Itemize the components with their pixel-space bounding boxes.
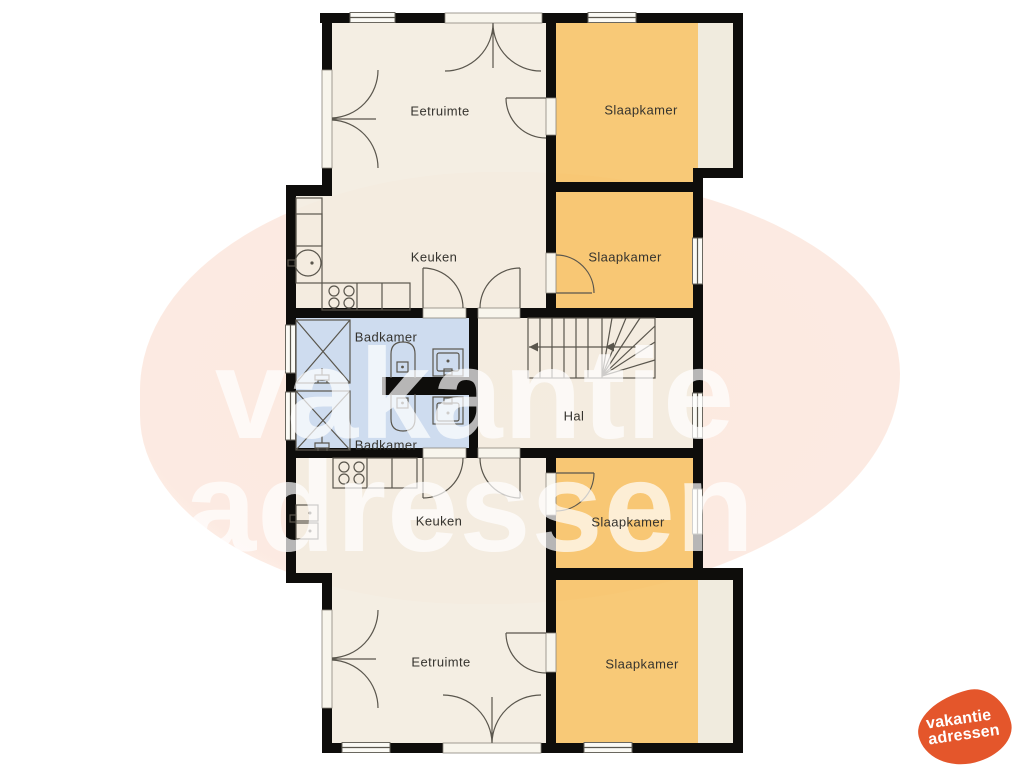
brand-logo: vakantie adressen <box>905 686 1020 766</box>
floorplan-page: vakantie adressen Eetruimte Slaapkamer K… <box>0 0 1024 768</box>
floor-strip-top-right <box>698 18 733 173</box>
room-label-badkamer-lower: Badkamer <box>355 438 417 453</box>
room-label-slaapkamer-bottom-right: Slaapkamer <box>605 657 678 672</box>
window <box>584 743 632 753</box>
room-label-eetruimte-top: Eetruimte <box>410 104 469 119</box>
window <box>342 743 390 753</box>
window <box>693 238 703 284</box>
room-label-badkamer-upper: Badkamer <box>355 330 417 345</box>
room-label-slaapkamer-top-right: Slaapkamer <box>604 103 677 118</box>
room-label-slaapkamer-lower-right: Slaapkamer <box>591 515 664 530</box>
window <box>350 13 395 23</box>
window <box>588 13 636 23</box>
room-label-keuken-top: Keuken <box>411 250 458 265</box>
room-label-eetruimte-bottom: Eetruimte <box>411 655 470 670</box>
room-label-hal: Hal <box>564 409 585 424</box>
watermark-line2: adressen <box>185 444 755 572</box>
floor-strip-bottom-right <box>698 578 733 748</box>
room-label-keuken-bottom: Keuken <box>416 514 463 529</box>
room-label-slaapkamer-mid-right: Slaapkamer <box>588 250 661 265</box>
